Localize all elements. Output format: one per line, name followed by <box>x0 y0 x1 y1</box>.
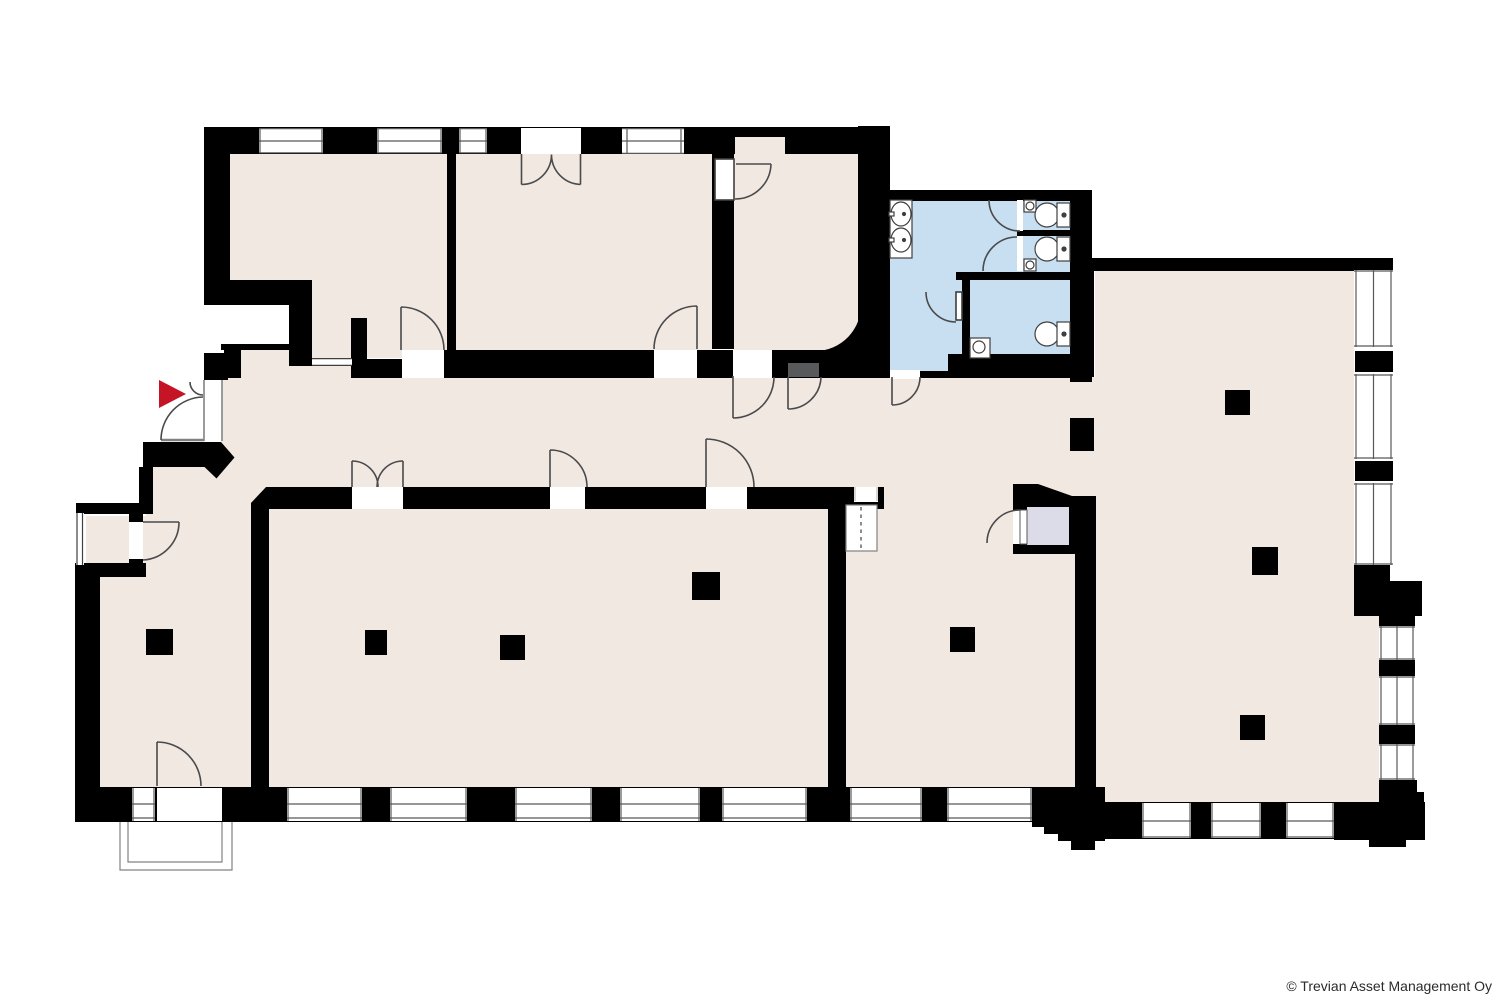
svg-text:© Trevian Asset Management Oy: © Trevian Asset Management Oy <box>1286 978 1492 994</box>
